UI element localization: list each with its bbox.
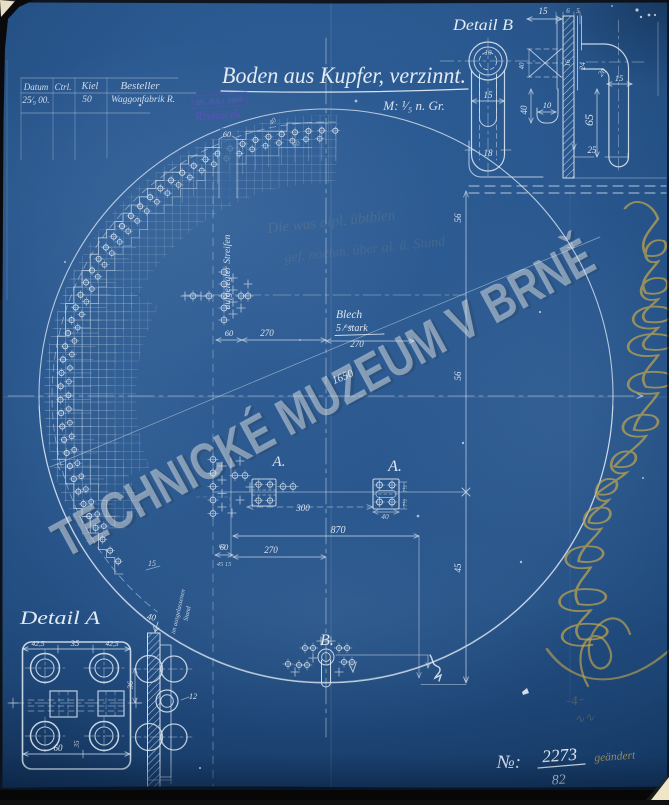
svg-text:63: 63	[219, 543, 226, 550]
svg-text:25⁄₉ 00.: 25⁄₉ 00.	[22, 95, 49, 105]
svg-text:60: 60	[223, 130, 231, 139]
svg-text:Datum: Datum	[23, 82, 49, 92]
svg-text:35: 35	[73, 740, 81, 749]
svg-text:A.: A.	[387, 458, 402, 475]
svg-text:10: 10	[485, 49, 493, 57]
svg-text:Rivnácek: Rivnácek	[193, 107, 241, 123]
svg-text:7½: 7½	[402, 485, 409, 493]
svg-text:12: 12	[189, 692, 197, 701]
svg-text:56: 56	[453, 371, 463, 381]
svg-text:5: 5	[576, 7, 580, 15]
svg-text:270: 270	[350, 339, 364, 349]
svg-text:15: 15	[148, 559, 156, 568]
svg-text:Detail B: Detail B	[452, 17, 514, 34]
svg-text:40: 40	[518, 62, 526, 70]
svg-text:15: 15	[484, 90, 494, 100]
svg-text:36: 36	[126, 681, 135, 690]
svg-text:Waggonfabrik R.: Waggonfabrik R.	[111, 94, 175, 105]
svg-text:870: 870	[331, 525, 346, 536]
svg-text:10: 10	[543, 100, 552, 110]
svg-text:42,5: 42,5	[105, 639, 118, 648]
svg-text:M: ¹⁄₅ n. Gr.: M: ¹⁄₅ n. Gr.	[382, 98, 445, 113]
svg-text:35: 35	[70, 638, 80, 648]
svg-text:m m: m m	[344, 325, 353, 330]
svg-text:60: 60	[225, 328, 234, 338]
svg-text:42,5: 42,5	[31, 639, 44, 648]
svg-text:B.: B.	[320, 632, 334, 649]
svg-text:A.: A.	[272, 454, 286, 470]
svg-text:25: 25	[588, 145, 598, 155]
svg-text:18: 18	[484, 148, 494, 158]
svg-text:60: 60	[54, 743, 64, 753]
svg-text:6: 6	[566, 7, 570, 15]
svg-text:45 15: 45 15	[217, 561, 232, 568]
svg-text:270: 270	[260, 328, 274, 338]
svg-text:Kiel: Kiel	[81, 81, 99, 92]
svg-text:15: 15	[539, 6, 549, 16]
svg-text:50: 50	[82, 95, 92, 105]
svg-text:Ctrl.: Ctrl.	[55, 82, 72, 92]
svg-text:Blech: Blech	[336, 309, 362, 321]
svg-text:270: 270	[264, 545, 278, 555]
svg-text:56: 56	[453, 213, 463, 223]
svg-text:15: 15	[615, 73, 624, 83]
svg-text:Boden aus Kupfer, verzinnt.: Boden aus Kupfer, verzinnt.	[222, 63, 466, 88]
svg-text:∿∿: ∿∿	[574, 710, 596, 727]
svg-text:16: 16	[564, 59, 572, 67]
svg-text:65: 65	[582, 114, 596, 126]
svg-text:300: 300	[295, 503, 310, 513]
svg-text:Besteller: Besteller	[120, 80, 160, 92]
svg-text:Detail A: Detail A	[19, 608, 101, 629]
svg-text:7½: 7½	[402, 499, 409, 507]
svg-text:45: 45	[453, 563, 463, 573]
svg-text:40: 40	[519, 105, 529, 115]
svg-text:40: 40	[381, 512, 389, 521]
